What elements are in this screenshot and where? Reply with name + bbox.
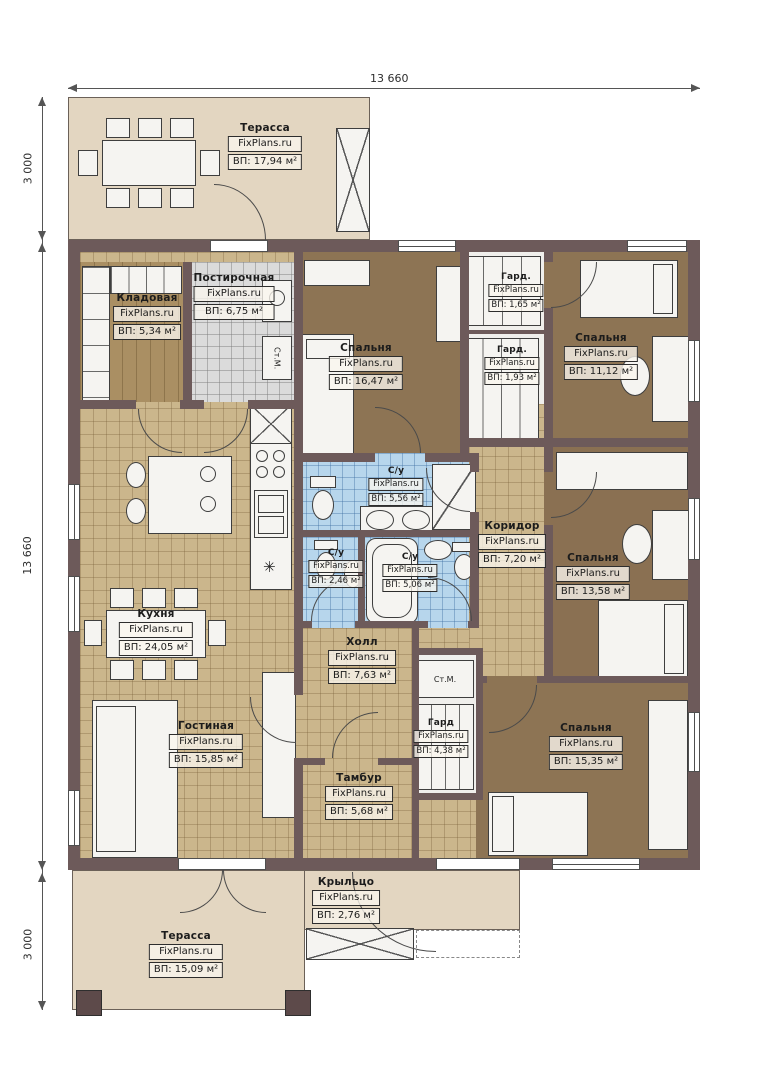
room-area: ВП: 15,85 м²	[169, 752, 243, 768]
chair	[84, 620, 102, 646]
chair	[126, 462, 146, 488]
sink-basin	[366, 510, 394, 530]
terrace-stairs	[336, 128, 370, 232]
room-name: Коридор	[478, 520, 546, 532]
room-area: ВП: 7,20 м²	[478, 552, 546, 568]
island-sink	[200, 466, 216, 482]
chair	[170, 118, 194, 138]
room-name: Гард.	[484, 345, 539, 355]
chair	[142, 660, 166, 680]
wall	[80, 400, 136, 409]
fridge-icon: ✳	[263, 558, 276, 576]
window	[398, 240, 456, 252]
washer-label-box: Ст.М.	[262, 336, 292, 380]
room-name: Терасса	[149, 930, 223, 942]
wall	[248, 400, 294, 409]
watermark: FixPlans.ru	[228, 136, 302, 152]
chair	[138, 188, 162, 208]
room-name: Гард	[413, 718, 468, 728]
room-name: Спальня	[564, 332, 638, 344]
wall	[468, 621, 479, 628]
wall	[68, 240, 80, 870]
room-name: Спальня	[549, 722, 623, 734]
wall	[476, 655, 483, 795]
window	[68, 576, 80, 632]
room-area: ВП: 4,38 м²	[413, 745, 468, 758]
floor-plan: 13 660 3 000 13 660 3 000	[0, 0, 763, 1080]
watermark: FixPlans.ru	[328, 650, 396, 666]
wall	[294, 765, 303, 858]
wall	[412, 793, 483, 800]
room-label-bath3: С/у FixPlans.ru ВП: 5,06 м²	[382, 552, 437, 592]
chair	[110, 588, 134, 608]
wall	[294, 252, 303, 628]
room-label-hall: Холл FixPlans.ru ВП: 7,63 м²	[328, 636, 396, 684]
closet-washer-label: Ст.М.	[434, 675, 456, 684]
pillow	[492, 796, 514, 852]
arrow-icon	[38, 231, 46, 240]
room-name: С/у	[382, 552, 437, 562]
chair	[78, 150, 98, 176]
room-area: ВП: 6,75 м²	[194, 304, 275, 320]
wall	[180, 400, 204, 409]
stove-burner	[273, 466, 285, 478]
stove-burner	[256, 466, 268, 478]
room-label-wardrobe1: Гард. FixPlans.ru ВП: 1,65 м²	[488, 272, 543, 312]
watermark: FixPlans.ru	[149, 944, 223, 960]
room-area: ВП: 7,63 м²	[328, 668, 396, 684]
wall	[412, 648, 483, 655]
room-label-pantry: Кладовая FixPlans.ru ВП: 5,34 м²	[113, 292, 181, 340]
kitchen-cabinet	[250, 404, 292, 444]
wardrobe	[648, 700, 688, 850]
room-label-bath2: С/у FixPlans.ru ВП: 2,46 м²	[308, 548, 363, 588]
door-opening	[178, 858, 266, 870]
watermark: FixPlans.ru	[169, 734, 243, 750]
room-label-porch: Крыльцо FixPlans.ru ВП: 2,76 м²	[312, 876, 380, 924]
pillow	[664, 604, 684, 674]
room-area: ВП: 2,46 м²	[308, 575, 363, 588]
island-sink	[200, 496, 216, 512]
chair	[126, 498, 146, 524]
room-area: ВП: 24,05 м²	[119, 640, 193, 656]
dimension-top-label: 13 660	[370, 72, 409, 85]
room-name: С/у	[368, 466, 423, 476]
room-label-bedroom1: Спальня FixPlans.ru ВП: 16,47 м²	[329, 342, 403, 390]
room-name: Кухня	[119, 608, 193, 620]
room-area: ВП: 11,12 м²	[564, 364, 638, 380]
window	[688, 712, 700, 772]
arrow-icon	[38, 861, 46, 870]
room-area: ВП: 16,47 м²	[329, 374, 403, 390]
sink-basin	[258, 495, 284, 513]
stove-burner	[273, 450, 285, 462]
room-label-vestibule: Тамбур FixPlans.ru ВП: 5,68 м²	[325, 772, 393, 820]
room-label-bedroom2: Спальня FixPlans.ru ВП: 11,12 м²	[564, 332, 638, 380]
wall	[544, 447, 553, 472]
toilet-bowl	[312, 490, 334, 520]
room-label-bedroom3: Спальня FixPlans.ru ВП: 13,58 м²	[556, 552, 630, 600]
arrow-icon	[38, 873, 46, 882]
room-label-living: Гостиная FixPlans.ru ВП: 15,85 м²	[169, 720, 243, 768]
chair	[138, 118, 162, 138]
room-label-kitchen: Кухня FixPlans.ru ВП: 24,05 м²	[119, 608, 193, 656]
room-area: ВП: 15,35 м²	[549, 754, 623, 770]
pillow	[653, 264, 673, 314]
room-name: Спальня	[556, 552, 630, 564]
room-label-wardrobe3: Гард FixPlans.ru ВП: 4,38 м²	[413, 718, 468, 758]
chair	[142, 588, 166, 608]
wall	[460, 252, 469, 453]
room-area: ВП: 13,58 м²	[556, 584, 630, 600]
room-label-laundry: Постирочная FixPlans.ru ВП: 6,75 м²	[194, 272, 275, 320]
watermark: FixPlans.ru	[564, 346, 638, 362]
arrow-icon	[38, 1001, 46, 1010]
room-name: Кладовая	[113, 292, 181, 304]
wall	[544, 252, 553, 262]
room-area: ВП: 5,06 м²	[382, 579, 437, 592]
room-label-wardrobe2: Гард. FixPlans.ru ВП: 1,93 м²	[484, 345, 539, 385]
watermark: FixPlans.ru	[368, 478, 423, 491]
watermark: FixPlans.ru	[308, 560, 363, 573]
room-area: ВП: 5,56 м²	[368, 493, 423, 506]
sink-basin	[258, 516, 284, 534]
window	[552, 858, 640, 870]
sink-basin	[402, 510, 430, 530]
tv-stand	[262, 672, 296, 818]
pantry-shelves	[82, 266, 110, 404]
dimension-left-middle-label: 13 660	[21, 536, 34, 575]
wall	[537, 676, 700, 683]
wall	[294, 628, 303, 695]
arrow-icon	[68, 84, 77, 92]
closet-washer-box: Ст.М.	[416, 660, 474, 698]
wall	[469, 330, 544, 334]
chair	[174, 588, 198, 608]
room-label-terrace-top: Терасса FixPlans.ru ВП: 17,94 м²	[228, 122, 302, 170]
stove-burner	[256, 450, 268, 462]
room-name: Гард.	[488, 272, 543, 282]
room-name: Крыльцо	[312, 876, 380, 888]
watermark: FixPlans.ru	[113, 306, 181, 322]
arrow-icon	[38, 243, 46, 252]
dining-table	[102, 140, 196, 186]
terrace-post	[76, 990, 102, 1016]
room-area: ВП: 1,65 м²	[488, 299, 543, 312]
room-area: ВП: 2,76 м²	[312, 908, 380, 924]
room-name: Холл	[328, 636, 396, 648]
arrow-icon	[691, 84, 700, 92]
room-label-bedroom4: Спальня FixPlans.ru ВП: 15,35 м²	[549, 722, 623, 770]
chair	[170, 188, 194, 208]
kitchen-island	[148, 456, 232, 534]
watermark: FixPlans.ru	[382, 564, 437, 577]
wall	[294, 758, 325, 765]
wall	[294, 621, 312, 628]
arrow-icon	[38, 97, 46, 106]
room-label-terrace-bottom: Терасса FixPlans.ru ВП: 15,09 м²	[149, 930, 223, 978]
watermark: FixPlans.ru	[194, 286, 275, 302]
room-label-corridor: Коридор FixPlans.ru ВП: 7,20 м²	[478, 520, 546, 568]
door-opening	[436, 858, 520, 870]
washer-label: Ст.М.	[273, 347, 282, 369]
watermark: FixPlans.ru	[488, 284, 543, 297]
room-area: ВП: 5,34 м²	[113, 324, 181, 340]
terrace-post	[285, 990, 311, 1016]
wall	[294, 530, 470, 537]
watermark: FixPlans.ru	[119, 622, 193, 638]
window	[688, 498, 700, 560]
chair	[106, 118, 130, 138]
wall	[294, 453, 375, 462]
watermark: FixPlans.ru	[556, 566, 630, 582]
door-opening	[210, 240, 268, 252]
wall	[68, 240, 700, 252]
room-name: Тамбур	[325, 772, 393, 784]
desk	[652, 336, 690, 422]
dresser	[304, 260, 370, 286]
room-name: Гостиная	[169, 720, 243, 732]
wall	[460, 438, 700, 447]
window	[688, 340, 700, 402]
wall	[355, 621, 428, 628]
chair	[200, 150, 220, 176]
room-name: Постирочная	[194, 272, 275, 284]
chair	[208, 620, 226, 646]
desk	[652, 510, 690, 580]
window	[68, 790, 80, 846]
room-area: ВП: 1,93 м²	[484, 372, 539, 385]
wall	[425, 453, 479, 462]
watermark: FixPlans.ru	[329, 356, 403, 372]
room-name: Спальня	[329, 342, 403, 354]
room-name: С/у	[308, 548, 363, 558]
room-area: ВП: 17,94 м²	[228, 154, 302, 170]
chair	[106, 188, 130, 208]
chair	[174, 660, 198, 680]
room-name: Терасса	[228, 122, 302, 134]
watermark: FixPlans.ru	[484, 357, 539, 370]
wall	[544, 308, 553, 445]
pantry-shelves	[110, 266, 182, 294]
window	[68, 484, 80, 540]
room-area: ВП: 5,68 м²	[325, 804, 393, 820]
toilet-tank	[310, 476, 336, 488]
wall	[470, 462, 479, 472]
wall	[378, 758, 419, 765]
window	[627, 240, 687, 252]
room-area: ВП: 15,09 м²	[149, 962, 223, 978]
room-label-bath1: С/у FixPlans.ru ВП: 5,56 м²	[368, 466, 423, 506]
wall	[183, 262, 192, 402]
watermark: FixPlans.ru	[413, 730, 468, 743]
watermark: FixPlans.ru	[325, 786, 393, 802]
watermark: FixPlans.ru	[478, 534, 546, 550]
chair	[110, 660, 134, 680]
watermark: FixPlans.ru	[312, 890, 380, 906]
dimension-line-top	[68, 88, 700, 89]
dimension-left-top-label: 3 000	[21, 153, 34, 185]
watermark: FixPlans.ru	[549, 736, 623, 752]
dimension-left-bottom-label: 3 000	[21, 929, 34, 961]
sofa-seat	[96, 706, 136, 852]
